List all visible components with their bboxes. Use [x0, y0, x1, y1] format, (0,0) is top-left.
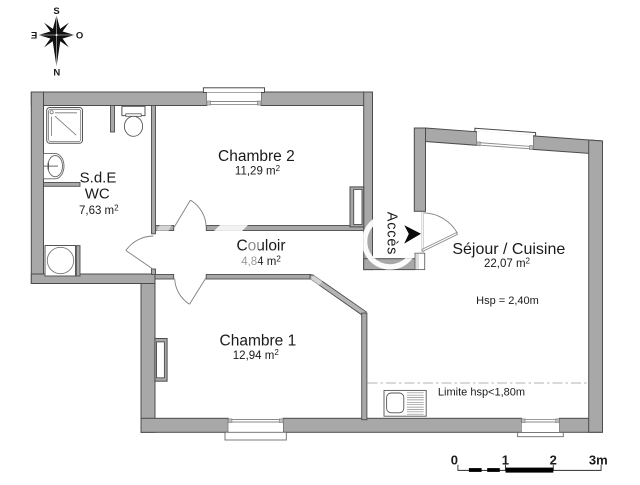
svg-text:Séjour / Cuisine: Séjour / Cuisine [452, 241, 565, 258]
svg-text:Chambre 1: Chambre 1 [220, 333, 297, 350]
svg-text:3m: 3m [589, 453, 608, 468]
svg-text:12,94 m2: 12,94 m2 [233, 348, 280, 362]
svg-text:11,29 m2: 11,29 m2 [235, 164, 281, 178]
svg-text:WC: WC [85, 186, 110, 203]
svg-text:Limite hsp<1,80m: Limite hsp<1,80m [438, 387, 525, 399]
svg-text:E: E [31, 31, 37, 42]
svg-text:7,63 m2: 7,63 m2 [79, 203, 119, 217]
svg-text:Hsp = 2,40m: Hsp = 2,40m [476, 295, 539, 307]
svg-text:S: S [53, 6, 59, 17]
svg-text:O: O [76, 31, 83, 42]
svg-text:S.d.E: S.d.E [80, 170, 117, 187]
svg-text:22,07 m2: 22,07 m2 [484, 256, 531, 270]
svg-text:Accès: Accès [384, 212, 400, 256]
svg-text:Chambre 2: Chambre 2 [218, 148, 295, 165]
svg-text:0: 0 [451, 453, 458, 468]
svg-text:N: N [53, 68, 60, 79]
